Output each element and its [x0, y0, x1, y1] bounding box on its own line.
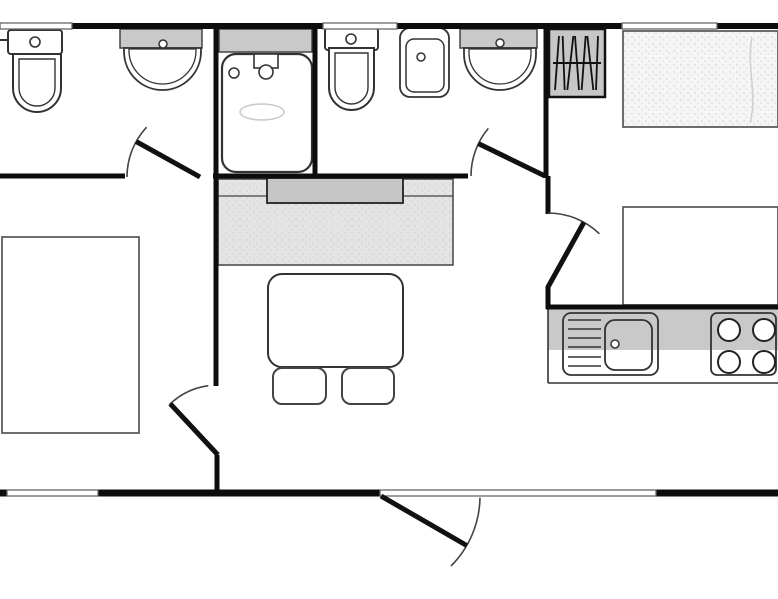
- washbasin-middle: [400, 28, 449, 97]
- toilet-middle: [325, 28, 378, 110]
- dinette-bench: [218, 178, 453, 265]
- door-bedroom-right: [548, 213, 599, 287]
- door-entrance: [381, 496, 480, 566]
- tap-icon: [496, 39, 504, 47]
- flush-button: [30, 37, 40, 47]
- toilet-bowl: [13, 54, 61, 112]
- bed-left: [2, 237, 139, 433]
- door-bedroom-left: [169, 386, 218, 455]
- basin-inner: [406, 39, 444, 92]
- door-swing-arc: [127, 127, 147, 177]
- door-leaf: [381, 496, 467, 546]
- bed-right-bottom: [623, 207, 778, 305]
- floor-plan-svg: [0, 0, 778, 599]
- dining-table: [268, 274, 403, 367]
- burner-icon: [753, 319, 775, 341]
- table-top: [268, 274, 403, 367]
- bed-mattress: [623, 207, 778, 305]
- door-leaf: [170, 404, 218, 455]
- washbasin-left: [120, 29, 202, 90]
- door-bathroom-middle: [471, 128, 545, 176]
- sink-drain: [611, 340, 619, 348]
- bench-back: [267, 178, 403, 203]
- window: [323, 23, 397, 29]
- bed-right-top: [623, 31, 778, 127]
- floor-plan: [0, 0, 778, 599]
- drain-dot: [417, 53, 425, 61]
- floor-plan-canvas: [0, 0, 778, 599]
- window: [622, 23, 717, 29]
- shower-shelf: [219, 29, 312, 52]
- burner-icon: [718, 319, 740, 341]
- door-swing-arc: [471, 128, 488, 176]
- door-leaf: [136, 142, 200, 177]
- flush-button: [346, 34, 356, 44]
- fixtures-layer: [0, 28, 778, 433]
- shower: [219, 29, 312, 172]
- door-leaf: [548, 222, 584, 287]
- chair-left: [273, 368, 326, 404]
- washbasin-right: [460, 29, 537, 90]
- window: [380, 490, 656, 496]
- window: [7, 490, 98, 496]
- tap-icon: [159, 40, 167, 48]
- burner-icon: [753, 351, 775, 373]
- door-swing-arc: [169, 386, 208, 405]
- door-leaf: [479, 144, 546, 176]
- shower-control: [229, 68, 239, 78]
- chair-seat: [342, 368, 394, 404]
- bed-mattress: [623, 31, 778, 127]
- chair-seat: [273, 368, 326, 404]
- burner-icon: [718, 351, 740, 373]
- shower-head-dot: [259, 65, 273, 79]
- wardrobe: [549, 29, 605, 97]
- chair-right: [342, 368, 394, 404]
- door-swing-arc: [548, 213, 599, 234]
- toilet-bowl: [329, 48, 374, 110]
- toilet-left: [0, 30, 62, 112]
- door-bathroom-left: [127, 127, 200, 177]
- window: [0, 23, 72, 29]
- bed-mattress: [2, 237, 139, 433]
- door-swing-arc: [451, 498, 480, 566]
